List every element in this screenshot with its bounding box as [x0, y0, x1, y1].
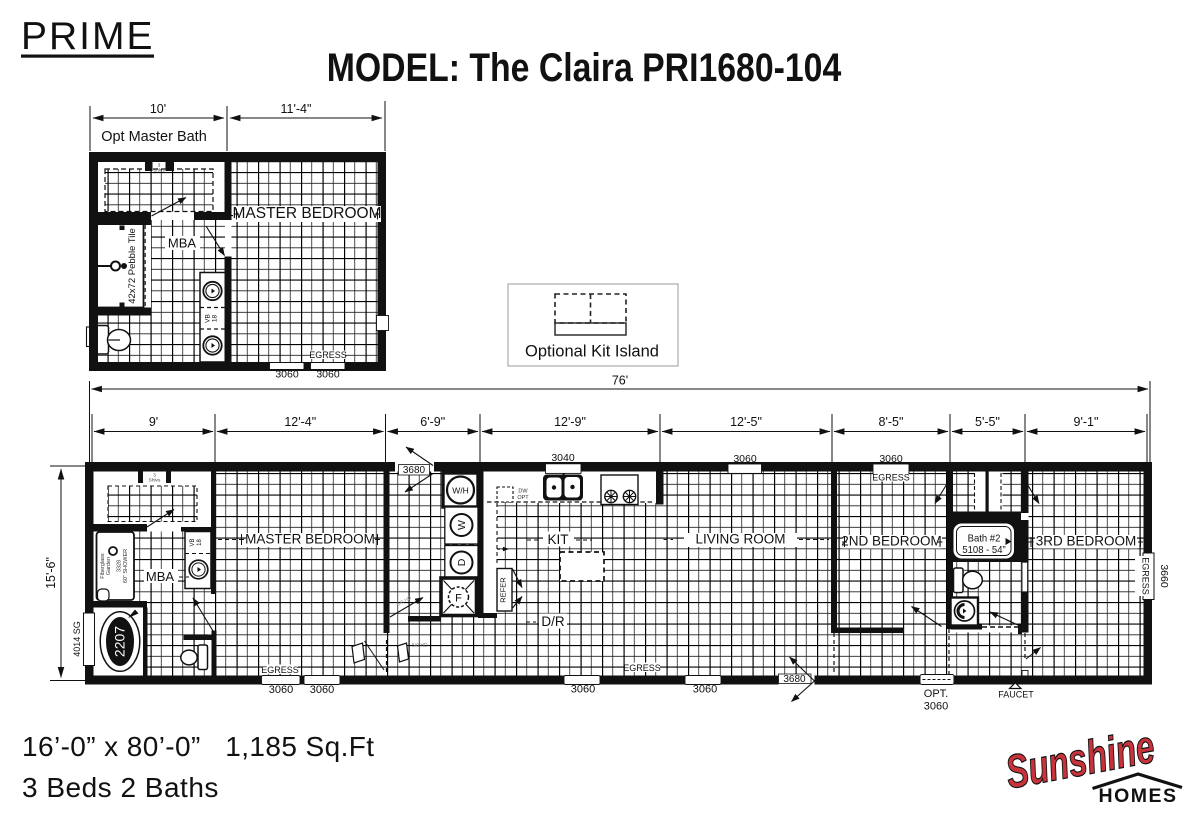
svg-text:EGRESS: EGRESS [872, 473, 910, 483]
svg-text:3 Beds 2 Baths: 3 Beds 2 Baths [22, 772, 219, 803]
svg-text:60” SHOWER: 60” SHOWER [123, 549, 129, 583]
svg-text:4014 SG: 4014 SG [72, 621, 82, 657]
svg-text:3680: 3680 [783, 674, 806, 685]
svg-text:OPT: OPT [517, 495, 529, 501]
svg-text:OPT.: OPT. [924, 688, 948, 700]
svg-text:9': 9' [149, 415, 158, 429]
svg-text:W: W [456, 520, 468, 530]
svg-text:3060: 3060 [693, 684, 717, 696]
svg-text:VB: VB [205, 314, 212, 323]
svg-text:REFER: REFER [499, 577, 508, 603]
svg-text:3060: 3060 [310, 684, 334, 696]
svg-text:LIVING ROOM: LIVING ROOM [695, 532, 785, 547]
svg-text:3060: 3060 [316, 369, 340, 381]
svg-text:Shlvs: Shlvs [149, 478, 161, 484]
svg-text:EGRESS: EGRESS [309, 350, 347, 360]
svg-text:MASTER BEDROOM: MASTER BEDROOM [233, 205, 382, 222]
svg-text:12'-9": 12'-9" [554, 415, 586, 429]
svg-text:10': 10' [150, 102, 166, 116]
svg-text:3680: 3680 [403, 465, 426, 476]
svg-text:2ND BEDROOM: 2ND BEDROOM [841, 534, 942, 549]
svg-text:76': 76' [612, 374, 628, 388]
svg-text:Garden: Garden [106, 557, 112, 575]
svg-text:18: 18 [197, 539, 203, 546]
svg-text:9'-1": 9'-1" [1074, 415, 1099, 429]
svg-text:F: F [455, 593, 462, 605]
svg-text:8'-5": 8'-5" [879, 415, 904, 429]
svg-text:FAUCET: FAUCET [998, 690, 1034, 700]
svg-text:EGRESS: EGRESS [1141, 557, 1151, 595]
svg-text:MODEL: The Claira PRI1680-104: MODEL: The Claira PRI1680-104 [327, 44, 842, 89]
svg-text:3060: 3060 [571, 684, 595, 696]
svg-text:KIT: KIT [547, 532, 568, 547]
svg-text:MBA: MBA [168, 236, 197, 251]
svg-text:3040: 3040 [551, 452, 575, 464]
svg-text:D/R: D/R [541, 614, 565, 629]
svg-text:42x72 Pebble Tile: 42x72 Pebble Tile [127, 228, 138, 304]
svg-text:W/H: W/H [452, 486, 469, 496]
svg-text:6'-9": 6'-9" [420, 415, 445, 429]
svg-text:16’-0” x 80’-0” 1,185 Sq.Ft: 16’-0” x 80’-0” 1,185 Sq.Ft [22, 731, 374, 762]
svg-text:3328: 3328 [117, 560, 123, 572]
svg-text:DW: DW [518, 489, 528, 495]
svg-text:12'-4": 12'-4" [284, 415, 316, 429]
svg-text:11'-4": 11'-4" [281, 102, 312, 116]
svg-text:Shlvs: Shlvs [153, 168, 165, 174]
svg-text:3RD BEDROOM: 3RD BEDROOM [1036, 534, 1137, 549]
svg-text:3060: 3060 [924, 701, 948, 713]
svg-text:3660: 3660 [1158, 564, 1170, 588]
svg-text:VB: VB [190, 538, 196, 546]
svg-text:PRIME: PRIME [21, 15, 155, 58]
svg-text:12'-5": 12'-5" [730, 415, 762, 429]
svg-text:Opt Master Bath: Opt Master Bath [101, 129, 207, 145]
svg-text:5'-5": 5'-5" [975, 415, 1000, 429]
svg-text:Bath #2: Bath #2 [968, 533, 1001, 544]
svg-text:MASTER BEDROOM: MASTER BEDROOM [245, 532, 375, 547]
svg-text:EGRESS: EGRESS [261, 665, 299, 675]
svg-text:5108 - 54”: 5108 - 54” [962, 545, 1005, 556]
svg-text:3060: 3060 [879, 453, 903, 465]
svg-text:3060: 3060 [733, 453, 757, 465]
svg-text:HOMES: HOMES [1098, 785, 1177, 807]
svg-text:15'-6": 15'-6" [44, 557, 58, 589]
svg-text:Optional Kit Island: Optional Kit Island [525, 343, 659, 361]
svg-text:MBA: MBA [146, 569, 175, 584]
svg-text:18: 18 [212, 315, 219, 323]
svg-text:3060: 3060 [275, 369, 299, 381]
svg-text:5/0 HD: 5/0 HD [412, 643, 428, 649]
svg-text:2207: 2207 [112, 626, 128, 657]
svg-text:3060: 3060 [269, 684, 293, 696]
svg-text:D: D [456, 558, 468, 566]
svg-text:EGRESS: EGRESS [623, 663, 661, 673]
